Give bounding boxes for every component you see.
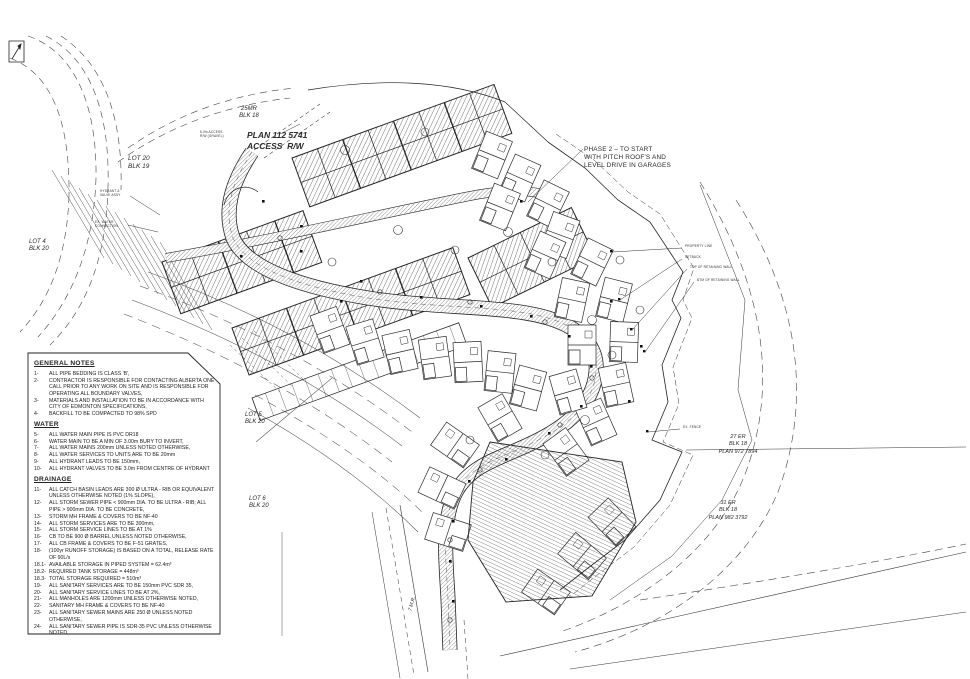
note-item: 18.3-TOTAL STORAGE REQUIRED = 510m³ bbox=[34, 576, 217, 583]
note-item: 2-CONTRACTOR IS RESPONSIBLE FOR CONTACTI… bbox=[34, 378, 217, 398]
label-31er-blk18: 31 ERBLK 18PLAN 982 3792 bbox=[690, 486, 766, 529]
note-item: 18-(100yr RUNOFF STORAGE) IS BASED ON A … bbox=[34, 548, 217, 561]
annotation-ex-water: EX. WATERCONNECTION bbox=[95, 221, 118, 229]
note-item: 11-ALL CATCH BASIN LEADS ARE 300 Ø ULTRA… bbox=[34, 487, 217, 500]
annotation-access-gravel: 6.0m ACCESSR/W (GRAVEL) bbox=[200, 131, 224, 139]
notes-section-heading: DRAINAGE bbox=[34, 476, 217, 484]
note-item: 13-STORM MH FRAME & COVERS TO BE NF-40 bbox=[34, 514, 217, 521]
note-item: 19-ALL SANITARY SERVICES ARE TO BE 150mm… bbox=[34, 583, 217, 590]
annotation-ex-fence: EX. FENCE bbox=[683, 426, 701, 430]
notes-panel: GENERAL NOTES 1-ALL PIPE BEDDING IS CLAS… bbox=[34, 357, 217, 637]
note-item: 15-ALL STORM SERVICE LINES TO BE AT 1% bbox=[34, 527, 217, 534]
note-item: 5-ALL WATER MAIN PIPE IS PVC DR18 bbox=[34, 432, 217, 439]
note-item: 4-BACKFILL TO BE COMPACTED TO 98% SPD bbox=[34, 411, 217, 418]
note-item: 17-ALL CB FRAME & COVERS TO BE F-51 GRAT… bbox=[34, 541, 217, 548]
note-item: 14-ALL STORM SERVICES ARE TO BE 300mm, bbox=[34, 521, 217, 528]
annotation-top-retaining: TOP OF RETAINING WALL bbox=[690, 266, 732, 270]
contour-lines-right bbox=[560, 182, 966, 652]
note-item: 16-CB TO BE 900 Ø BARREL UNLESS NOTED OT… bbox=[34, 534, 217, 541]
note-item: 24-ALL SANITARY SEWER PIPE IS SDR-35 PVC… bbox=[34, 624, 217, 637]
note-item: 10-ALL HYDRANT VALVES TO BE 3.0m FROM CE… bbox=[34, 466, 217, 473]
note-item: 6-WATER MAIN TO BE A MIN OF 3.00m BURY T… bbox=[34, 439, 217, 446]
annotation-setback: SETBACK bbox=[685, 256, 701, 260]
label-lot20-blk19: LOT 20BLK 19 bbox=[128, 138, 150, 180]
label-lot4-blk20: LOT 4BLK 20 bbox=[29, 223, 49, 262]
note-item: 21-ALL MANHOLES ARE 1200mm UNLESS OTHERW… bbox=[34, 596, 217, 603]
annotation-btm-retaining: BTM OF RETAINING WALL bbox=[697, 279, 740, 283]
annotation-hydrant: HYDRANT &VALVE ASSY bbox=[100, 190, 121, 198]
note-item: 7-ALL WATER MAINS 200mm UNLESS NOTED OTH… bbox=[34, 445, 217, 452]
note-item: 9-ALL HYDRANT LEADS TO BE 150mm, bbox=[34, 459, 217, 466]
label-lot5-blk20: LOT 5BLK 20 bbox=[245, 396, 265, 435]
notes-section-heading: GENERAL NOTES bbox=[34, 360, 217, 368]
label-lot6-blk20: LOT 6BLK 20 bbox=[249, 480, 269, 519]
note-item: 3-MATERIALS AND INSTALLATION TO BE IN AC… bbox=[34, 398, 217, 411]
label-27er-blk18: 27 ERBLK 18PLAN 972 7894 bbox=[700, 420, 776, 463]
label-phase2-note: PHASE 2 – TO STARTWITH PITCH ROOF'S ANDL… bbox=[584, 129, 671, 179]
note-item: 22-SANITARY MH FRAME & COVERS TO BE NF-4… bbox=[34, 603, 217, 610]
note-item: 23-ALL SANITARY SEWER MAINS ARE 250 Ø UN… bbox=[34, 610, 217, 623]
annotation-property-line: PROPERTY LINE bbox=[685, 245, 712, 249]
label-plan-access-rw: PLAN 112 5741ACCESS R/W bbox=[247, 108, 307, 163]
site-plan-sheet: 25MRBLK 18 PLAN 112 5741ACCESS R/W LOT 2… bbox=[0, 0, 970, 679]
hatched-pad bbox=[468, 442, 636, 602]
notes-section-items: 11-ALL CATCH BASIN LEADS ARE 300 Ø ULTRA… bbox=[34, 487, 217, 637]
notes-section-heading: WATER bbox=[34, 421, 217, 429]
notes-section-items: 5-ALL WATER MAIN PIPE IS PVC DR186-WATER… bbox=[34, 432, 217, 473]
note-item: 8-ALL WATER SERVICES TO UNITS ARE TO BE … bbox=[34, 452, 217, 459]
notes-section-items: 1-ALL PIPE BEDDING IS CLASS 'B',2-CONTRA… bbox=[34, 371, 217, 418]
north-arrow bbox=[9, 41, 24, 62]
note-item: 1-ALL PIPE BEDDING IS CLASS 'B', bbox=[34, 371, 217, 378]
note-item: 18.1-AVAILABLE STORAGE IN PIPED SYSTEM =… bbox=[34, 562, 217, 569]
note-item: 20-ALL SANITARY SERVICE LINES TO BE AT 2… bbox=[34, 590, 217, 597]
note-item: 12-ALL STORM SEWER PIPE < 900mm DIA. TO … bbox=[34, 500, 217, 513]
contour-lines-topleft bbox=[10, 36, 295, 345]
note-item: 18.2-REQUIRED TANK STORAGE = 448m³ bbox=[34, 569, 217, 576]
